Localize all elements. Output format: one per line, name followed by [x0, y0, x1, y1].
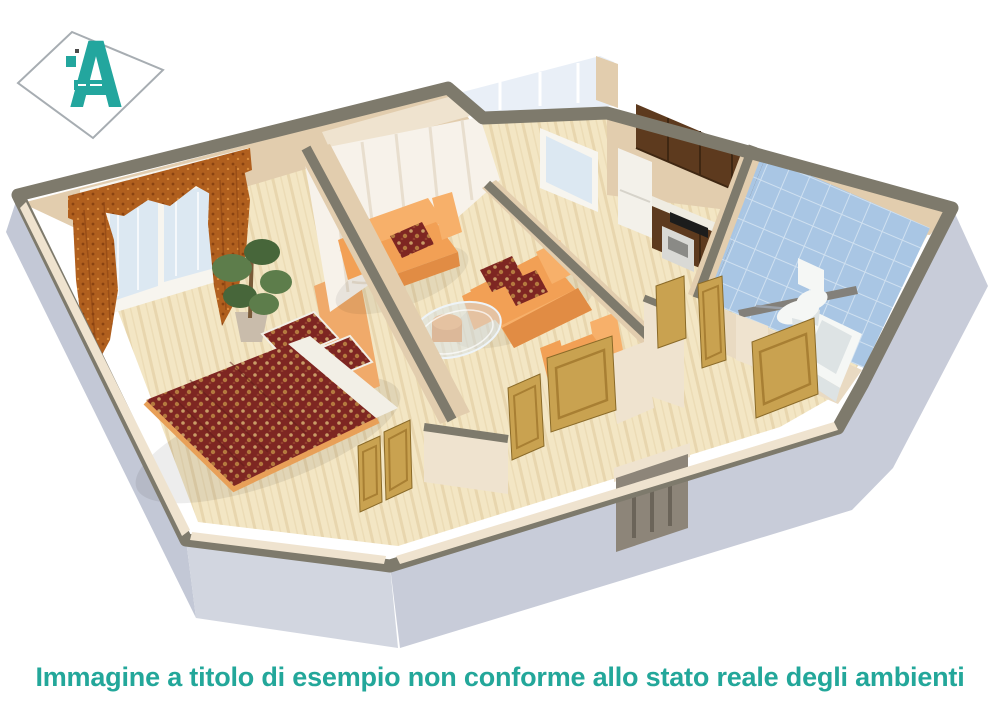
plant-leaves: [260, 270, 292, 294]
balcony-glazing: [455, 56, 614, 114]
plant-leaves: [249, 293, 279, 315]
door-leaf: [384, 420, 412, 500]
plant-leaves: [212, 254, 252, 282]
apartment-3d-floorplan: A: [0, 0, 1000, 707]
placeholder-image: A Immagine a titolo di esempio non confo…: [0, 0, 1000, 707]
agency-logo: A: [18, 23, 163, 138]
logo-registered-dot: [75, 49, 79, 53]
door-leaf: [358, 436, 382, 512]
door-leaf: [656, 276, 686, 348]
crossbar-tick: [90, 84, 102, 86]
logo-crossbar-text: [74, 80, 108, 90]
logo-letter-flag: [66, 56, 76, 67]
plant-leaves: [244, 239, 280, 265]
disclaimer-caption: Immagine a titolo di esempio non conform…: [0, 662, 1000, 693]
refrigerator: [618, 148, 652, 238]
door-leaf: [508, 374, 544, 460]
crossbar-tick: [78, 84, 86, 86]
balcony-column: [596, 56, 618, 108]
door-leaf: [698, 276, 726, 368]
logo-letter: A: [70, 23, 122, 129]
